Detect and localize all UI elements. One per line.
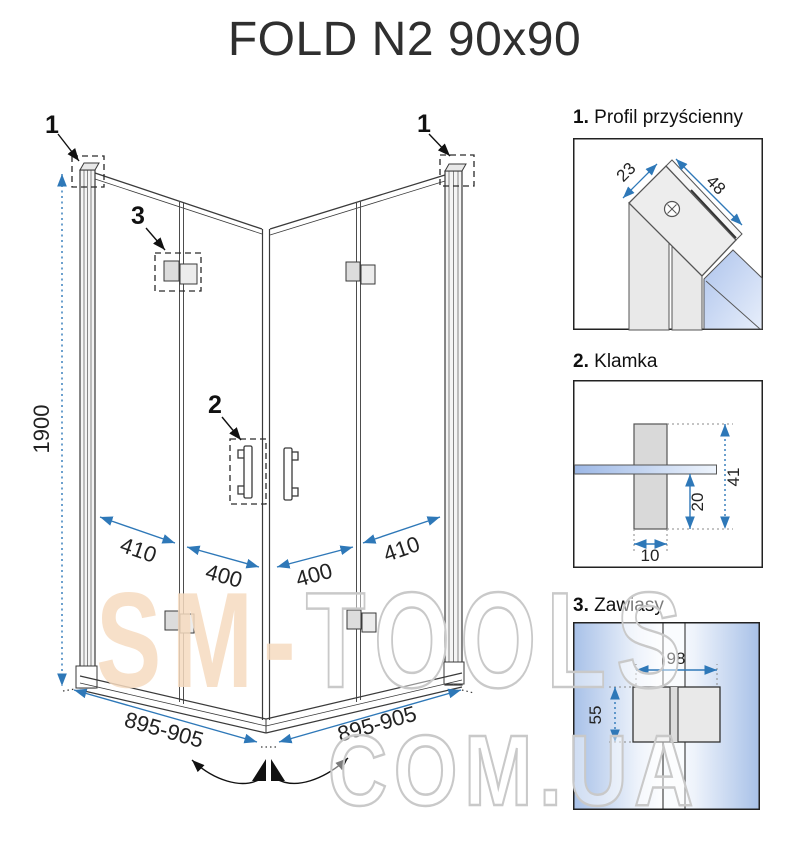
left-wall-profile: [76, 163, 99, 688]
right-wall-profile: [444, 164, 466, 685]
detail-3-dim-height-label: 55: [586, 706, 605, 725]
detail-2-dim-width-label: 10: [641, 546, 660, 565]
detail-2-header: 2. Klamka: [573, 351, 658, 373]
detail-3-header: 3. Zawiasy: [573, 595, 664, 617]
dim-left-inner-label: 400: [203, 559, 245, 593]
door-meet-icon: [252, 759, 285, 781]
glass-bar: [575, 465, 717, 474]
callout-3: 3: [131, 202, 145, 230]
handle-icon: [284, 448, 298, 500]
main-drawing: 1 1 3 2 1900 410 400 400 410 895-905 895…: [0, 0, 560, 861]
detail-2-dim-total-label: 41: [724, 468, 743, 487]
dim-base-left-label: 895-905: [122, 707, 207, 753]
dim-left-outer-label: 410: [117, 532, 160, 568]
dim-right-outer-label: 410: [380, 531, 423, 567]
dim-base-right-label: 895-905: [335, 701, 420, 747]
detail-3-title: Zawiasy: [594, 595, 664, 616]
screw-icon: [665, 202, 680, 217]
callout-2: 2: [208, 391, 222, 419]
handle-icon: [238, 446, 252, 498]
hinge-icon: [165, 611, 194, 633]
hinge-icon: [347, 610, 376, 632]
detail-2-number: 2.: [573, 351, 589, 372]
hinge-body: [633, 687, 720, 742]
detail-2-diagram: 41 20 10: [573, 380, 763, 568]
detail-2-title: Klamka: [594, 351, 657, 372]
page: FOLD N2 90x90: [0, 0, 809, 861]
detail-1-diagram: 23 48: [573, 138, 763, 330]
detail-2-dim-lower-label: 20: [688, 493, 707, 512]
handle-knob: [634, 424, 667, 529]
hinge-icon: [164, 261, 197, 284]
detail-1-number: 1.: [573, 107, 589, 128]
detail-3-dim-width-label: 98: [667, 649, 686, 668]
detail-1-title: Profil przyścienny: [594, 107, 743, 128]
handles: [238, 446, 298, 500]
hinge-icon: [346, 262, 375, 284]
dim-right-inner-label: 400: [293, 558, 335, 592]
dimension-lines: [62, 174, 461, 742]
callout-1-right: 1: [417, 110, 431, 138]
dim-height-label: 1900: [29, 405, 54, 454]
detail-3-number: 3.: [573, 595, 589, 616]
detail-3-diagram: 98 55: [573, 622, 760, 810]
callout-1-left: 1: [45, 111, 59, 139]
glass-top-edges: [95, 173, 445, 235]
door-swing-arrows: [192, 758, 348, 783]
detail-1-header: 1. Profil przyścienny: [573, 107, 743, 129]
